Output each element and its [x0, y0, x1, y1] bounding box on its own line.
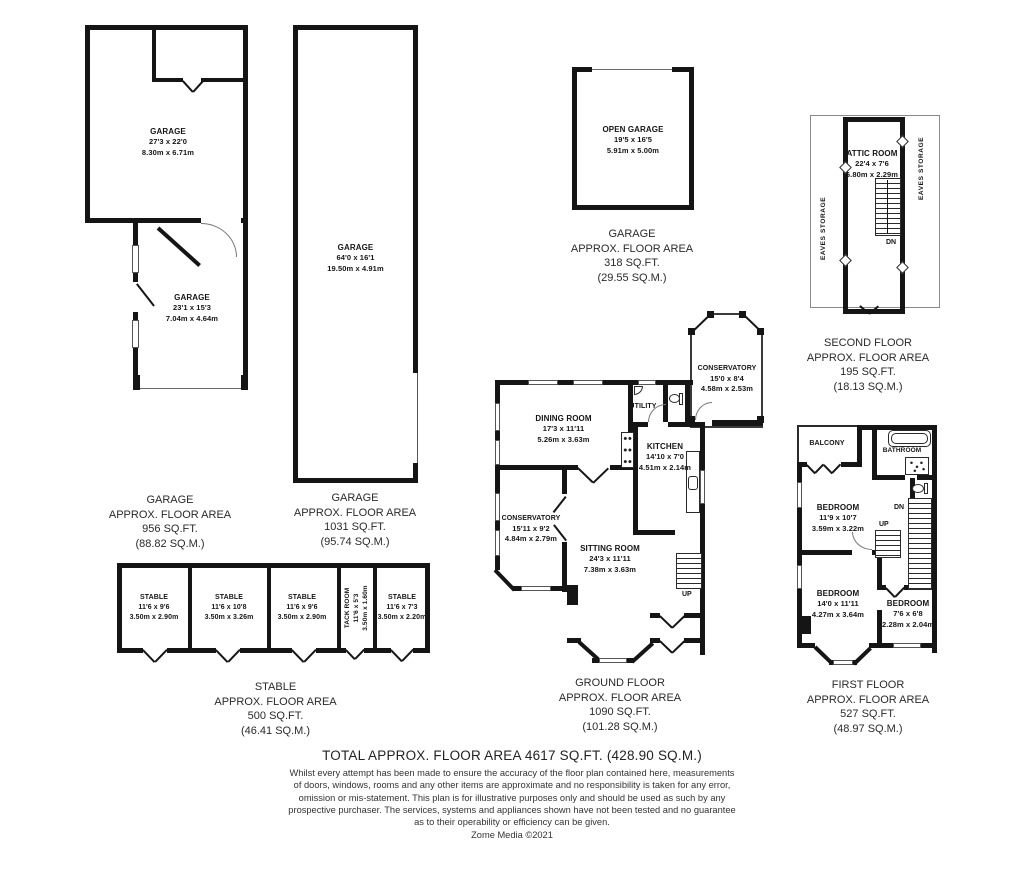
caption-line: 500 SQ.FT.	[198, 709, 353, 724]
caption-line: APPROX. FLOOR AREA	[198, 695, 353, 710]
caption-line: (48.97 SQ.M.)	[793, 722, 943, 737]
room-name: DINING ROOM	[516, 413, 611, 424]
door-opening	[852, 550, 872, 555]
window-marker	[893, 643, 921, 648]
garage-door-opening	[413, 373, 418, 463]
room-name: SITTING ROOM	[566, 543, 654, 554]
room-name: CONSERVATORY	[488, 514, 574, 524]
balcony-rail	[797, 425, 799, 467]
room-name: KITCHEN	[635, 441, 695, 452]
caption-line: APPROX. FLOOR AREA	[557, 242, 707, 257]
room-size-m: 3.50m x 1.60m	[361, 578, 370, 638]
window-marker	[797, 565, 802, 589]
door-opening	[648, 422, 668, 427]
room-size-ft: 17'3 x 11'11	[516, 424, 611, 435]
room-size-m: 19.50m x 4.91m	[293, 264, 418, 275]
room-name: UTILITY	[621, 402, 665, 412]
room-name: TACK ROOM	[343, 578, 352, 638]
room-size-ft: 23'1 x 15'3	[137, 303, 247, 314]
wall	[156, 78, 183, 82]
toilet	[912, 484, 924, 493]
caption-open-garage: GARAGE APPROX. FLOOR AREA 318 SQ.FT. (29…	[557, 227, 707, 285]
kitchen-sink	[688, 476, 698, 490]
room-label-bathroom: BATHROOM	[874, 446, 930, 455]
room-size-ft: 15'11 x 9'2	[488, 524, 574, 535]
room-size-ft: 24'3 x 11'11	[566, 554, 654, 565]
room-name: CONSERVATORY	[690, 364, 764, 374]
room-name: STABLE	[376, 593, 428, 603]
room-size-m: 7.38m x 3.63m	[566, 565, 654, 576]
caption-line: APPROX. FLOOR AREA	[280, 506, 430, 521]
room-size-ft: 22'4 x 7'6	[816, 159, 928, 170]
staircase	[676, 553, 702, 589]
window-marker	[700, 470, 705, 504]
room-size-ft: 14'10 x 7'0	[635, 452, 695, 463]
sink	[634, 386, 643, 395]
stairs-dn-label: DN	[886, 239, 896, 246]
staircase	[908, 498, 932, 590]
room-size-ft: 11'6 x 7'3	[376, 603, 428, 613]
caption-second-floor: SECOND FLOOR APPROX. FLOOR AREA 195 SQ.F…	[793, 336, 943, 394]
room-label-stable-5: STABLE 11'6 x 7'3 3.50m x 2.20m	[376, 593, 428, 622]
window-marker	[495, 403, 500, 431]
caption-line: APPROX. FLOOR AREA	[793, 351, 943, 366]
room-size-m: 4.51m x 2.14m	[635, 463, 695, 474]
wall	[572, 205, 694, 210]
stairs-up-label: UP	[682, 591, 692, 598]
room-size-m: 5.91m x 5.00m	[568, 146, 698, 157]
disclaimer-line: omission or mis-statement. This plan is …	[0, 792, 1024, 804]
room-name: GARAGE	[103, 126, 233, 137]
room-name: ATTIC ROOM	[816, 148, 928, 159]
caption-line: 195 SQ.FT.	[793, 365, 943, 380]
caption-garage-block: GARAGE APPROX. FLOOR AREA 956 SQ.FT. (88…	[95, 493, 245, 551]
room-size-ft: 11'6 x 10'8	[194, 603, 264, 613]
wall	[672, 67, 694, 72]
caption-first-floor: FIRST FLOOR APPROX. FLOOR AREA 527 SQ.FT…	[793, 678, 943, 736]
caption-line: 318 SQ.FT.	[557, 256, 707, 271]
total-floor-area: TOTAL APPROX. FLOOR AREA 4617 SQ.FT. (42…	[0, 748, 1024, 763]
room-name: STABLE	[270, 593, 334, 603]
room-name: BEDROOM	[882, 598, 934, 609]
room-size-m: 5.26m x 3.63m	[516, 435, 611, 446]
toilet-tank	[679, 393, 683, 405]
window-marker	[573, 380, 603, 385]
window-marker	[599, 658, 627, 663]
caption-line: SECOND FLOOR	[793, 336, 943, 351]
room-size-m: 6.80m x 2.29m	[816, 170, 928, 181]
room-size-ft: 11'6 x 9'6	[270, 603, 334, 613]
copyright: Zome Media ©2021	[0, 829, 1024, 841]
toilet-tank	[924, 483, 928, 494]
caption-line: (88.82 SQ.M.)	[95, 537, 245, 552]
caption-line: GARAGE	[557, 227, 707, 242]
room-size-m: 4.58m x 2.53m	[690, 384, 764, 395]
room-label-conservatory-rear: CONSERVATORY 15'0 x 8'4 4.58m x 2.53m	[690, 364, 764, 395]
plan-ground-floor: CONSERVATORY 15'0 x 8'4 4.58m x 2.53m	[488, 308, 783, 673]
disclaimer-line: Whilst every attempt has been made to en…	[0, 767, 1024, 779]
disclaimer-line: of doors, windows, rooms and any other i…	[0, 779, 1024, 791]
room-label-bedroom2: BEDROOM 14'0 x 11'11 4.27m x 3.64m	[804, 588, 872, 620]
room-size-ft: 14'0 x 11'11	[804, 599, 872, 610]
open-front-line	[592, 69, 672, 70]
room-name: BALCONY	[802, 439, 852, 449]
caption-line: (46.41 SQ.M.)	[198, 724, 353, 739]
disclaimer-line: prospective purchaser. The services, sys…	[0, 804, 1024, 816]
room-label-garage-top: GARAGE 27'3 x 22'0 8.30m x 6.71m	[103, 126, 233, 158]
room-size-ft: 64'0 x 16'1	[293, 253, 418, 264]
plan-first-floor: UP DN BALCONY BATHROOM BEDROOM 11'9 x 10…	[790, 420, 950, 680]
room-name: BEDROOM	[804, 588, 872, 599]
room-size-ft: 19'5 x 16'5	[568, 135, 698, 146]
window-marker	[833, 660, 853, 665]
room-label-open-garage: OPEN GARAGE 19'5 x 16'5 5.91m x 5.00m	[568, 124, 698, 156]
door-arc	[201, 223, 237, 257]
caption-line: APPROX. FLOOR AREA	[793, 693, 943, 708]
room-size-ft: 7'6 x 6'8	[882, 609, 934, 620]
wall	[337, 568, 341, 648]
stair-rail	[887, 180, 888, 234]
room-size-ft: 11'6 x 5'3	[352, 578, 361, 638]
plan-second-floor: DN ATTIC ROOM 22'4 x 7'6 6.80m x 2.29m E…	[790, 108, 950, 323]
cooker	[621, 432, 634, 468]
room-name: STABLE	[122, 593, 186, 603]
door-opening	[201, 218, 241, 223]
room-size-m: 8.30m x 6.71m	[103, 148, 233, 159]
room-size-m: 4.84m x 2.79m	[488, 534, 574, 545]
shower	[905, 457, 929, 475]
room-size-m: 3.50m x 2.20m	[376, 613, 428, 623]
bay-angled-wall	[631, 642, 654, 664]
room-size-ft: 27'3 x 22'0	[103, 137, 233, 148]
chimney-breast	[567, 585, 578, 605]
room-label-garage-bottom: GARAGE 23'1 x 15'3 7.04m x 4.64m	[137, 292, 247, 324]
window-marker	[495, 440, 500, 465]
room-size-m: 3.59m x 3.22m	[806, 524, 870, 535]
corner-post	[688, 328, 695, 335]
caption-line: 956 SQ.FT.	[95, 522, 245, 537]
room-label-balcony: BALCONY	[802, 439, 852, 449]
garage-door-line	[140, 388, 241, 389]
wall	[188, 568, 192, 648]
wall	[85, 25, 248, 223]
room-name: BEDROOM	[806, 502, 870, 513]
room-label-conservatory-side: CONSERVATORY 15'11 x 9'2 4.84m x 2.79m	[488, 514, 574, 545]
wall	[633, 422, 705, 427]
wall	[572, 67, 592, 72]
wall	[633, 530, 675, 535]
room-size-ft: 15'0 x 8'4	[690, 374, 764, 385]
room-name: OPEN GARAGE	[568, 124, 698, 135]
room-name: GARAGE	[293, 242, 418, 253]
caption-line: GARAGE	[280, 491, 430, 506]
caption-garage-long: GARAGE APPROX. FLOOR AREA 1031 SQ.FT. (9…	[280, 491, 430, 549]
window-marker	[521, 586, 551, 591]
window-marker	[797, 482, 802, 508]
room-label-bedroom3: BEDROOM 7'6 x 6'8 2.28m x 2.04m	[882, 598, 934, 630]
room-size-m: 7.04m x 4.64m	[137, 314, 247, 325]
caption-line: (29.55 SQ.M.)	[557, 271, 707, 286]
room-label-utility: UTILITY	[621, 402, 665, 412]
wall-diagonal	[157, 227, 201, 267]
room-label-attic: ATTIC ROOM 22'4 x 7'6 6.80m x 2.29m	[816, 148, 928, 180]
caption-line: APPROX. FLOOR AREA	[545, 691, 695, 706]
caption-line: 1090 SQ.FT.	[545, 705, 695, 720]
plan-garage-block: GARAGE 27'3 x 22'0 8.30m x 6.71m GARAGE …	[80, 20, 265, 400]
eaves-storage-left-label: EAVES STORAGE	[820, 170, 827, 260]
wall	[201, 78, 248, 82]
room-size-m: 3.50m x 2.90m	[122, 613, 186, 623]
wall	[857, 425, 862, 467]
caption-line: 527 SQ.FT.	[793, 707, 943, 722]
plan-stables: STABLE 11'6 x 9'6 3.50m x 2.90m STABLE 1…	[110, 558, 440, 673]
caption-line: (101.28 SQ.M.)	[545, 720, 695, 735]
wall	[133, 375, 140, 390]
window-marker	[132, 245, 139, 273]
disclaimer: Whilst every attempt has been made to en…	[0, 767, 1024, 841]
plan-open-garage: OPEN GARAGE 19'5 x 16'5 5.91m x 5.00m	[555, 60, 710, 220]
room-label-dining: DINING ROOM 17'3 x 11'11 5.26m x 3.63m	[516, 413, 611, 445]
room-name: BATHROOM	[874, 446, 930, 455]
caption-stables: STABLE APPROX. FLOOR AREA 500 SQ.FT. (46…	[198, 680, 353, 738]
caption-line: FIRST FLOOR	[793, 678, 943, 693]
caption-line: STABLE	[198, 680, 353, 695]
plan-garage-long: GARAGE 64'0 x 16'1 19.50m x 4.91m	[288, 20, 428, 490]
caption-line: 1031 SQ.FT.	[280, 520, 430, 535]
door-swing-line	[553, 496, 566, 513]
caption-ground-floor: GROUND FLOOR APPROX. FLOOR AREA 1090 SQ.…	[545, 676, 695, 734]
room-size-m: 3.50m x 3.26m	[194, 613, 264, 623]
room-label-sitting: SITTING ROOM 24'3 x 11'11 7.38m x 3.63m	[566, 543, 654, 575]
staircase	[875, 178, 901, 236]
corner-post	[707, 311, 714, 318]
room-label-kitchen: KITCHEN 14'10 x 7'0 4.51m x 2.14m	[635, 441, 695, 473]
room-name: STABLE	[194, 593, 264, 603]
stairs-dn-label: DN	[894, 504, 904, 511]
room-label-bedroom1: BEDROOM 11'9 x 10'7 3.59m x 3.22m	[806, 502, 870, 534]
wall	[843, 117, 905, 122]
wall	[700, 427, 705, 655]
caption-line: APPROX. FLOOR AREA	[95, 508, 245, 523]
wall	[562, 470, 567, 494]
corner-post	[739, 311, 746, 318]
caption-line: (18.13 SQ.M.)	[793, 380, 943, 395]
eaves-storage-right-label: EAVES STORAGE	[918, 138, 925, 200]
window-marker	[132, 320, 139, 348]
room-label-stable-1: STABLE 11'6 x 9'6 3.50m x 2.90m	[122, 593, 186, 622]
window-marker	[528, 380, 558, 385]
room-size-m: 3.50m x 2.90m	[270, 613, 334, 623]
wall	[152, 30, 156, 82]
caption-line: (95.74 SQ.M.)	[280, 535, 430, 550]
wall	[843, 117, 848, 314]
door-arc	[852, 532, 872, 550]
room-size-m: 2.28m x 2.04m	[882, 620, 934, 631]
room-size-m: 4.27m x 3.64m	[804, 610, 872, 621]
room-label-garage-long: GARAGE 64'0 x 16'1 19.50m x 4.91m	[293, 242, 418, 274]
staircase	[875, 530, 901, 558]
disclaimer-line: as to their operability or efficiency ca…	[0, 816, 1024, 828]
caption-line: GARAGE	[95, 493, 245, 508]
bathtub-inner	[891, 433, 928, 444]
bay-angled-wall	[853, 647, 872, 666]
balcony-rail	[797, 425, 857, 427]
stairs-up-label: UP	[879, 521, 889, 528]
room-size-ft: 11'9 x 10'7	[806, 513, 870, 524]
bay-opening	[815, 643, 869, 648]
room-label-tack-room: TACK ROOM 11'6 x 5'3 3.50m x 1.60m	[343, 578, 371, 638]
wall	[685, 380, 690, 427]
room-size-ft: 11'6 x 9'6	[122, 603, 186, 613]
corner-post	[757, 328, 764, 335]
window-marker	[638, 380, 656, 385]
caption-line: GROUND FLOOR	[545, 676, 695, 691]
wall	[877, 475, 905, 480]
wall	[917, 475, 932, 480]
room-name: GARAGE	[137, 292, 247, 303]
room-label-stable-2: STABLE 11'6 x 10'8 3.50m x 3.26m	[194, 593, 264, 622]
room-label-stable-3: STABLE 11'6 x 9'6 3.50m x 2.90m	[270, 593, 334, 622]
floorplan-canvas: GARAGE 27'3 x 22'0 8.30m x 6.71m GARAGE …	[0, 0, 1024, 888]
wall	[241, 375, 248, 390]
